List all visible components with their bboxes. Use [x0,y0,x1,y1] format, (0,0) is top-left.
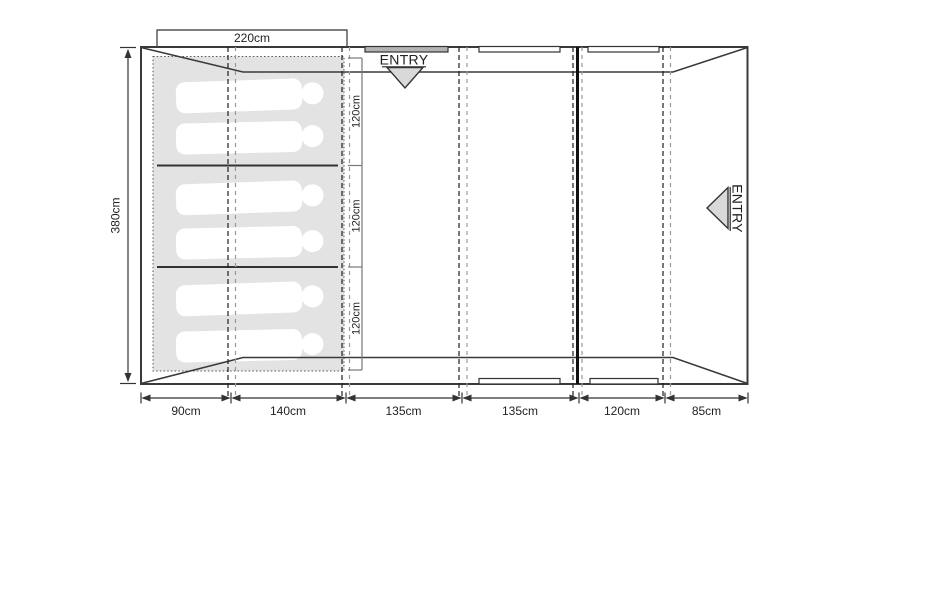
dim-left: 380cm [109,48,137,384]
top-window-bar-1 [479,47,560,53]
floorplan-svg: ENTRY ENTRY 220cm 380cm 120cm 120cm 120c… [0,0,928,601]
dim-bedroom-sections: 120cm 120cm 120cm [348,58,363,370]
entry-top-marker: ENTRY [380,52,429,89]
bottom-window-bar-1 [479,379,560,385]
dim-bottom-label-2: 140cm [270,404,306,418]
dim-bottom: 90cm 140cm 135cm 135cm 120cm 85cm [141,393,748,419]
dim-bottom-label-6: 85cm [692,404,721,418]
dim-top-label: 220cm [234,31,270,45]
bedroom-section-label-1: 120cm [351,95,363,128]
sleeper-body [176,281,303,316]
dim-left-label: 380cm [109,197,123,233]
entry-arrow-down-icon [387,68,423,89]
sleeper-body [176,180,303,215]
sleeper-body [176,121,303,155]
entry-arrow-left-icon [707,188,728,229]
sleeping-area [153,57,344,372]
top-window-bar-2 [588,47,659,53]
dim-bottom-label-5: 120cm [604,404,640,418]
dim-bottom-label-1: 90cm [171,404,200,418]
entry-top-label: ENTRY [380,52,429,68]
bedroom-section-label-3: 120cm [351,302,363,335]
entry-right-marker: ENTRY [707,184,746,233]
bottom-window-bar-2 [590,379,658,385]
tent-floorplan-diagram: ENTRY ENTRY 220cm 380cm 120cm 120cm 120c… [0,0,928,601]
sleeper-body [176,78,303,113]
entry-right-label: ENTRY [730,184,746,233]
dim-bottom-label-3: 135cm [385,404,421,418]
bedroom-section-label-2: 120cm [351,199,363,232]
dim-bottom-label-4: 135cm [502,404,538,418]
dim-top: 220cm [157,30,347,46]
sleeper-body [176,226,303,260]
wall-openings [365,47,659,385]
